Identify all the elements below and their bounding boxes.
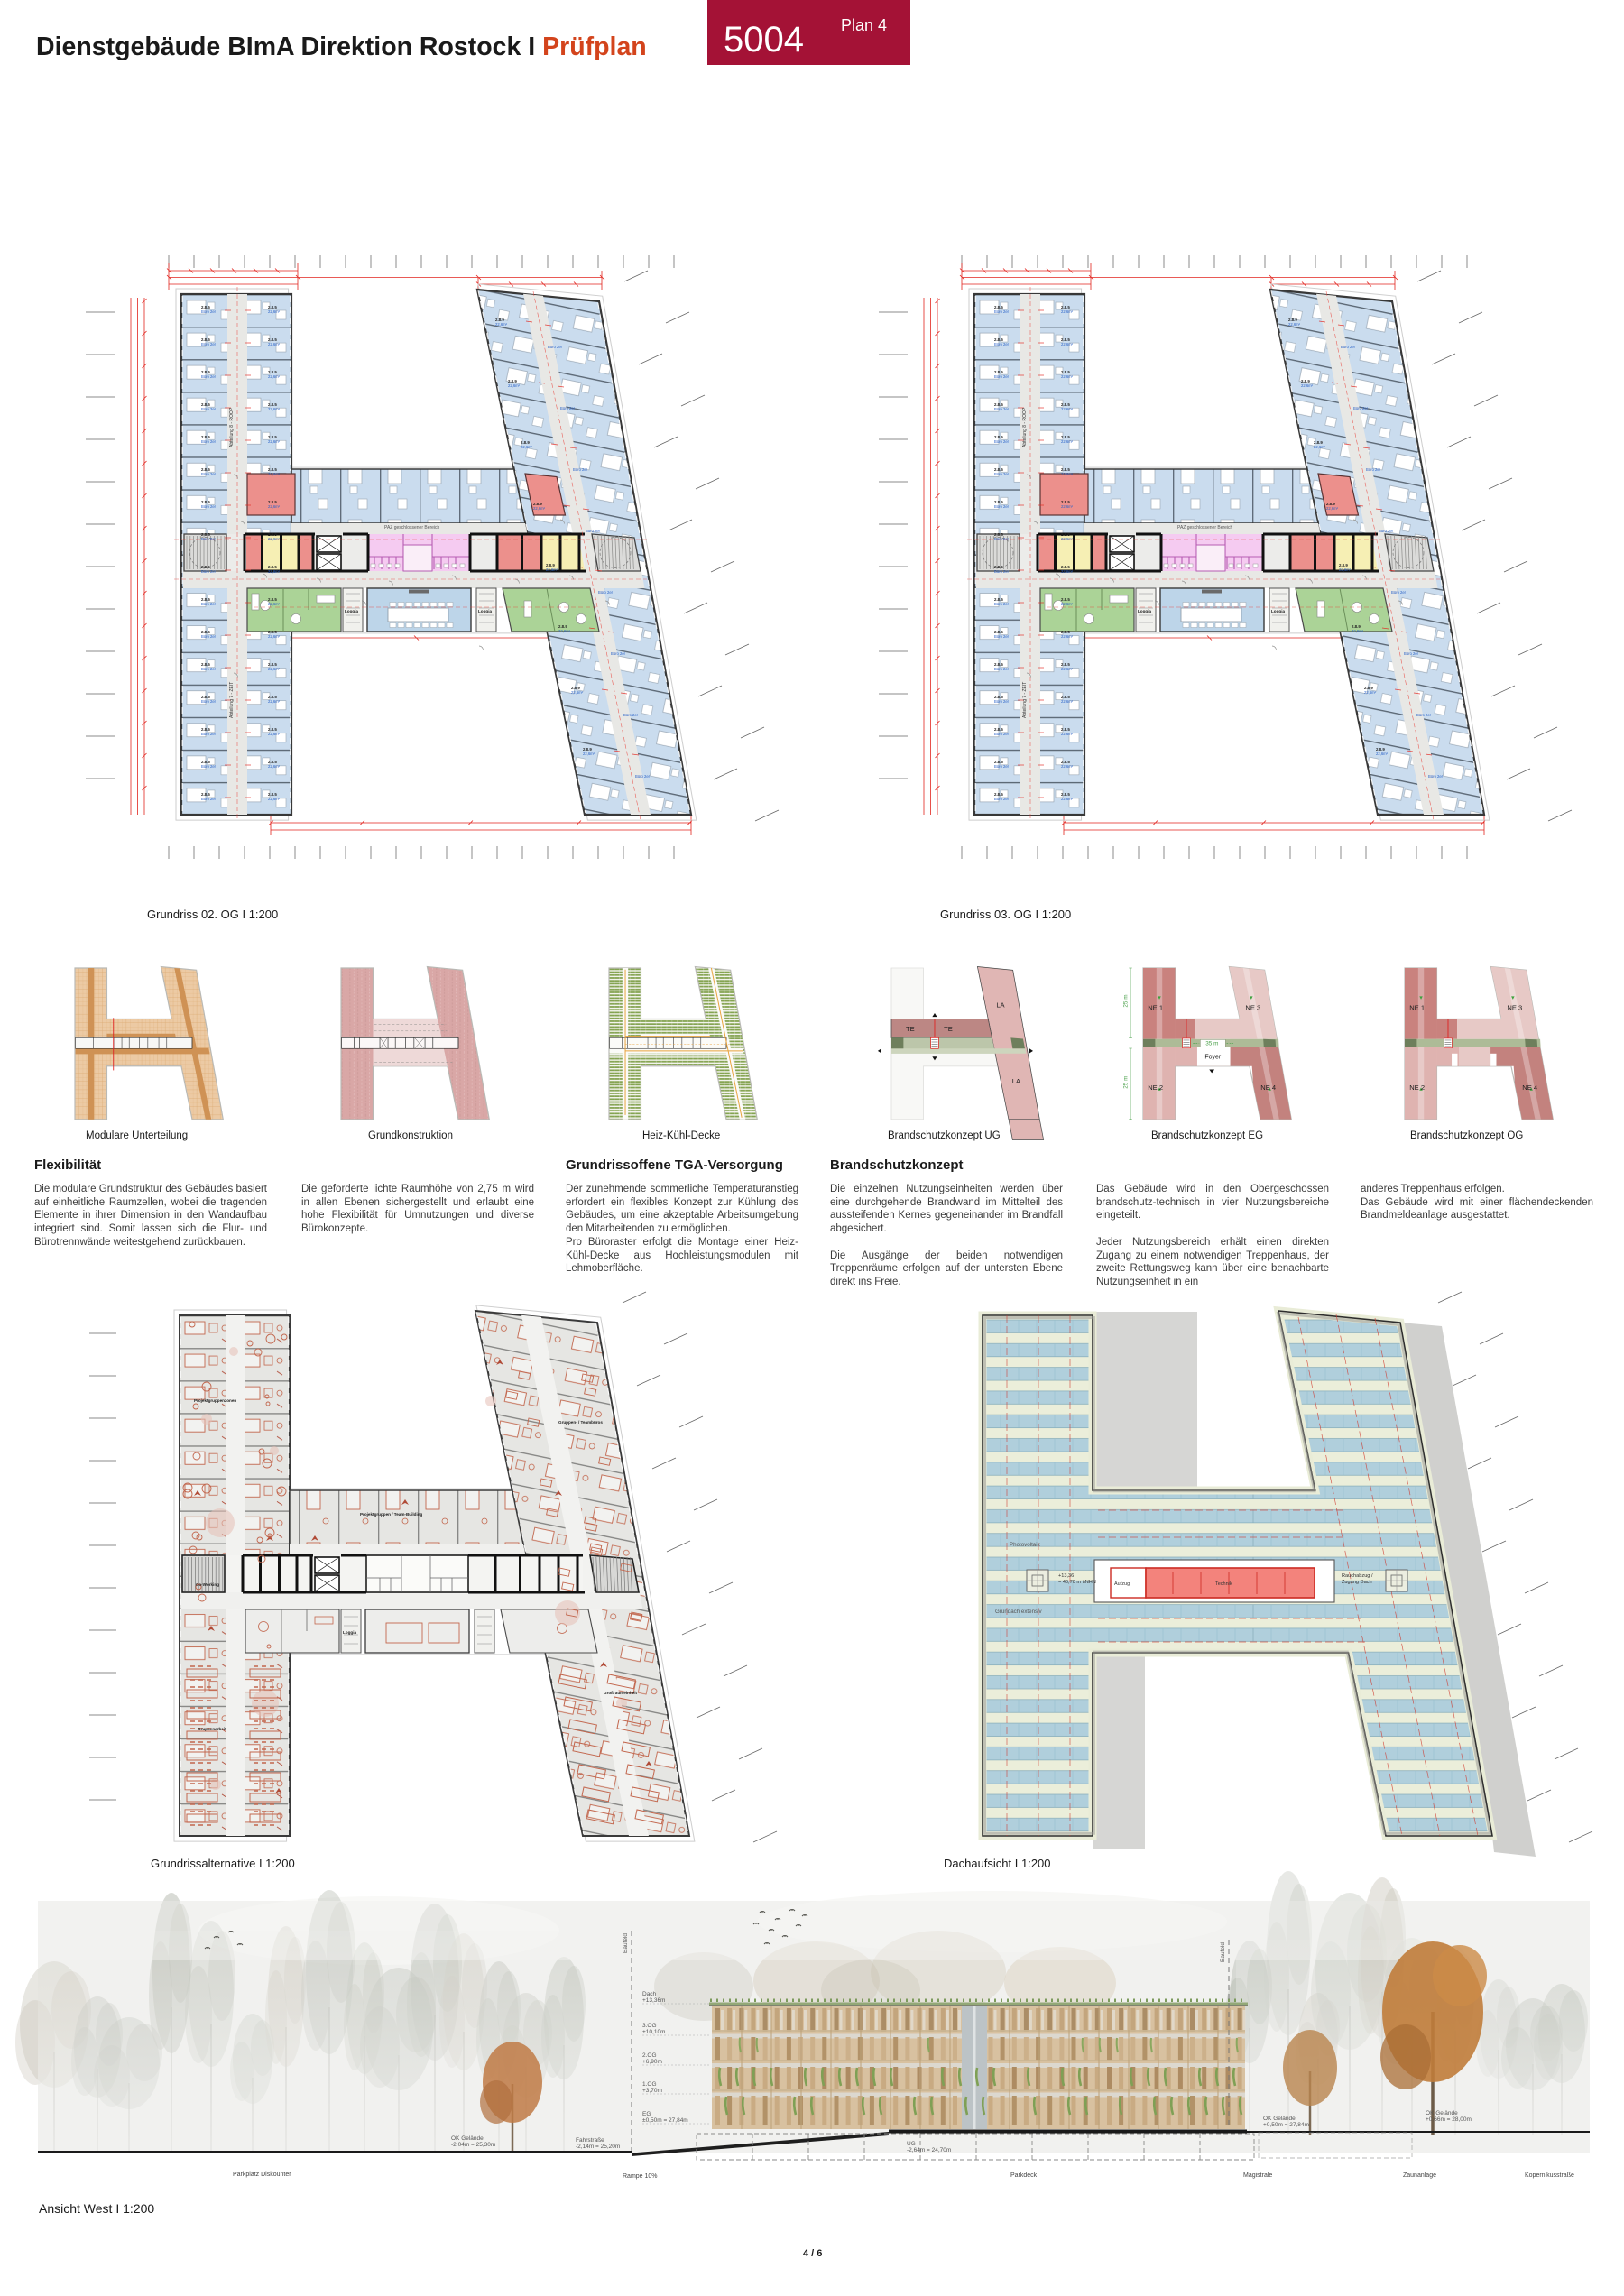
svg-text:Projektgruppenzonen: Projektgruppenzonen [194, 1398, 236, 1403]
svg-text:NE 2: NE 2 [1409, 1083, 1425, 1092]
svg-text:±0,50m = 27,84m: ±0,50m = 27,84m [642, 2117, 688, 2124]
svg-text:NE 3: NE 3 [1507, 1004, 1522, 1012]
svg-text:Parkdeck: Parkdeck [1010, 2172, 1038, 2179]
svg-text:Zugang Dach: Zugang Dach [1342, 1580, 1372, 1585]
svg-text:+13,36: +13,36 [1058, 1573, 1074, 1579]
svg-text:-2,04m = 25,30m: -2,04m = 25,30m [451, 2142, 495, 2148]
svg-text:+0,50m = 27,84m: +0,50m = 27,84m [1263, 2122, 1309, 2128]
svg-text:+3,70m: +3,70m [642, 2088, 662, 2094]
svg-text:NE 3: NE 3 [1245, 1004, 1260, 1012]
svg-text:Loggia: Loggia [343, 1630, 357, 1635]
svg-text:+0,66m = 28,00m: +0,66m = 28,00m [1426, 2116, 1472, 2123]
svg-text:Zaunanlage: Zaunanlage [1403, 2172, 1436, 2179]
svg-text:= 40,70 m üNHN: = 40,70 m üNHN [1058, 1580, 1096, 1585]
svg-text:Rampe 10%: Rampe 10% [623, 2173, 658, 2180]
svg-text:1.OG: 1.OG [642, 2081, 657, 2088]
svg-text:Gruppenarbeit: Gruppenarbeit [198, 1727, 226, 1731]
svg-text:Großraumeinheit: Großraumeinheit [604, 1691, 637, 1695]
svg-text:Foyer: Foyer [1204, 1055, 1221, 1061]
svg-text:NE 1: NE 1 [1409, 1004, 1425, 1012]
svg-text:TE: TE [944, 1025, 953, 1033]
svg-text:NE 4: NE 4 [1522, 1083, 1537, 1092]
svg-text:NE 4: NE 4 [1260, 1083, 1276, 1092]
svg-text:Kopernikusstraße: Kopernikusstraße [1525, 2172, 1574, 2179]
svg-text:-2,14m = 25,20m: -2,14m = 25,20m [576, 2144, 620, 2150]
svg-text:25 m: 25 m [1123, 994, 1130, 1007]
svg-text:Fahrstraße: Fahrstraße [576, 2137, 604, 2144]
svg-text:Baufeld: Baufeld [623, 1933, 629, 1953]
svg-text:-2,64m = 24,70m: -2,64m = 24,70m [907, 2147, 951, 2153]
svg-text:Photovoltaik: Photovoltaik [1010, 1542, 1041, 1548]
svg-text:Gründach extensiv: Gründach extensiv [995, 1609, 1042, 1615]
svg-text:NE 1: NE 1 [1148, 1004, 1163, 1012]
svg-text:35 m: 35 m [1205, 1040, 1218, 1047]
svg-text:Gruppen- / Teambüros: Gruppen- / Teambüros [558, 1420, 603, 1425]
svg-text:Baufeld: Baufeld [1220, 1942, 1226, 1962]
svg-text:OK Gelände: OK Gelände [1263, 2116, 1296, 2122]
svg-text:Rauchabzug /: Rauchabzug / [1342, 1573, 1373, 1579]
svg-text:+6,90m: +6,90m [642, 2059, 662, 2065]
svg-text:25 m: 25 m [1123, 1076, 1130, 1089]
svg-text:+10,10m: +10,10m [642, 2029, 665, 2035]
svg-text:Parkplatz Diskounter: Parkplatz Diskounter [233, 2172, 291, 2178]
svg-text:NE 2: NE 2 [1148, 1083, 1163, 1092]
svg-text:Dach: Dach [642, 1991, 657, 1997]
svg-text:LA: LA [996, 1001, 1005, 1010]
svg-text:Technik: Technik [1215, 1581, 1232, 1587]
svg-text:EG: EG [642, 2111, 651, 2117]
svg-text:TE: TE [906, 1025, 915, 1033]
svg-text:Aufzug: Aufzug [1114, 1581, 1130, 1587]
svg-text:2.OG: 2.OG [642, 2052, 657, 2059]
svg-text:OK Gelände: OK Gelände [1426, 2110, 1458, 2116]
svg-text:Co-Working: Co-Working [196, 1582, 219, 1587]
svg-text:UG: UG [907, 2141, 916, 2147]
svg-text:LA: LA [1012, 1077, 1021, 1085]
svg-text:3.OG: 3.OG [642, 2023, 657, 2029]
svg-text:OK Gelände: OK Gelände [451, 2135, 484, 2142]
svg-text:Magistrale: Magistrale [1243, 2172, 1272, 2179]
svg-text:+13,36m: +13,36m [642, 1997, 665, 2004]
svg-text:Projektgruppen / Team-Building: Projektgruppen / Team-Building [360, 1512, 423, 1517]
